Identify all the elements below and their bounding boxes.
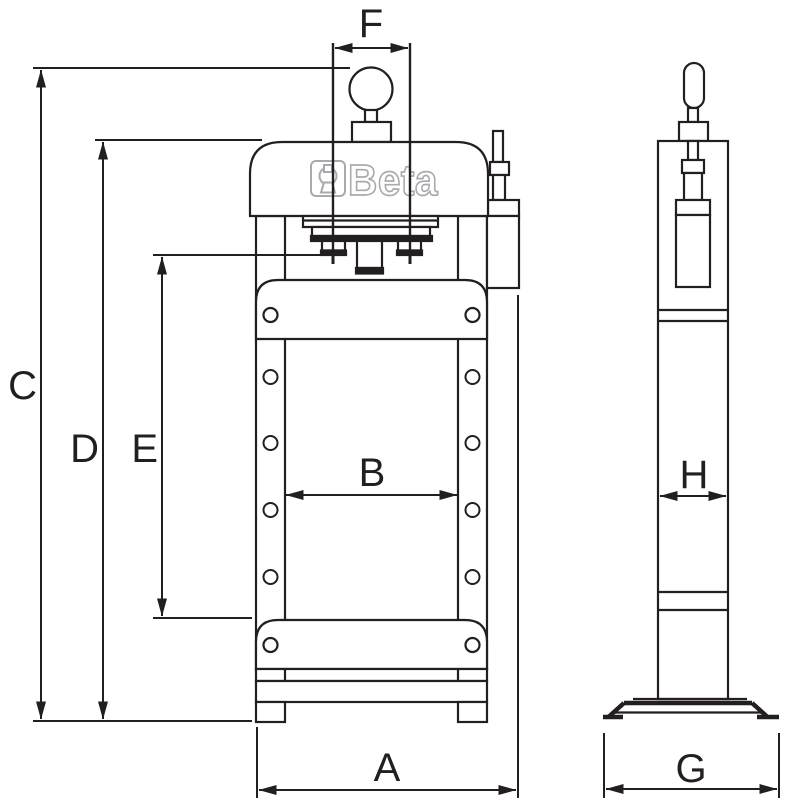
beta-logo-text: Beta xyxy=(348,156,438,205)
lower-bolster-plate xyxy=(256,620,487,669)
bolt-hole xyxy=(466,436,480,450)
bolt-hole xyxy=(264,370,278,384)
base-assembly xyxy=(256,669,487,722)
lower-bolster xyxy=(256,620,487,669)
side-view xyxy=(603,63,779,717)
release-valve-pin xyxy=(493,131,503,162)
handle-stem xyxy=(365,110,377,122)
bolt-hole xyxy=(466,370,480,384)
pump-cylinder-side xyxy=(676,141,710,287)
upper-bolster xyxy=(256,280,487,339)
handle-rod xyxy=(688,108,698,122)
pump-rod-lower xyxy=(684,173,702,200)
dimension-D: D xyxy=(70,140,262,719)
base-rail-upper xyxy=(256,669,487,681)
ram-piston-foot xyxy=(356,268,383,274)
handle-socket xyxy=(679,122,708,141)
pump-body xyxy=(487,216,519,288)
bolt-hole xyxy=(466,308,480,322)
bolt-hole xyxy=(264,638,278,652)
ram-piston xyxy=(357,241,382,268)
dimension-B: B xyxy=(286,451,457,495)
release-valve-stem xyxy=(493,175,505,200)
dim-label-A: A xyxy=(374,746,401,790)
dimension-G: G xyxy=(604,733,779,798)
technical-drawing-canvas: Beta xyxy=(0,0,800,812)
left-foot xyxy=(256,702,285,722)
pump-handle-socket-front xyxy=(350,68,393,143)
dim-label-F: F xyxy=(359,2,383,46)
base-rail-lower xyxy=(256,681,487,702)
ram-plate-narrow xyxy=(312,227,430,236)
handle-socket-base xyxy=(352,122,391,142)
bolt-hole xyxy=(466,570,480,584)
pump-unit xyxy=(487,131,519,288)
hydraulic-press-drawing: Beta xyxy=(0,0,800,812)
dim-label-D: D xyxy=(70,427,99,471)
right-foot xyxy=(458,702,487,722)
release-valve-block xyxy=(490,162,509,175)
pump-cylinder-cap xyxy=(676,200,710,215)
pump-cylinder-body xyxy=(676,215,710,287)
front-view: Beta xyxy=(250,68,519,723)
pump-coupler xyxy=(682,160,704,173)
bolt-hole xyxy=(466,638,480,652)
bolt-hole xyxy=(264,503,278,517)
dim-label-C: C xyxy=(8,364,37,408)
side-foot xyxy=(603,699,779,717)
bolt-hole xyxy=(264,436,278,450)
pump-bracket xyxy=(488,200,519,216)
bolt-hole xyxy=(264,308,278,322)
dim-label-H: H xyxy=(680,453,709,497)
pump-rod-upper xyxy=(688,141,698,160)
handle-ball-knob xyxy=(350,68,393,111)
ram-assembly xyxy=(303,216,438,274)
pump-handle-side xyxy=(679,63,708,141)
handle-grip xyxy=(684,63,704,108)
bolt-hole xyxy=(466,503,480,517)
foot-slant-left xyxy=(609,703,624,717)
dim-label-B: B xyxy=(359,451,386,495)
dim-label-G: G xyxy=(675,747,706,791)
foot-slant-right xyxy=(752,703,767,717)
upper-bolster-plate xyxy=(256,280,487,339)
bolt-hole xyxy=(264,570,278,584)
dim-label-E: E xyxy=(131,427,158,471)
press-head: Beta xyxy=(250,142,488,216)
